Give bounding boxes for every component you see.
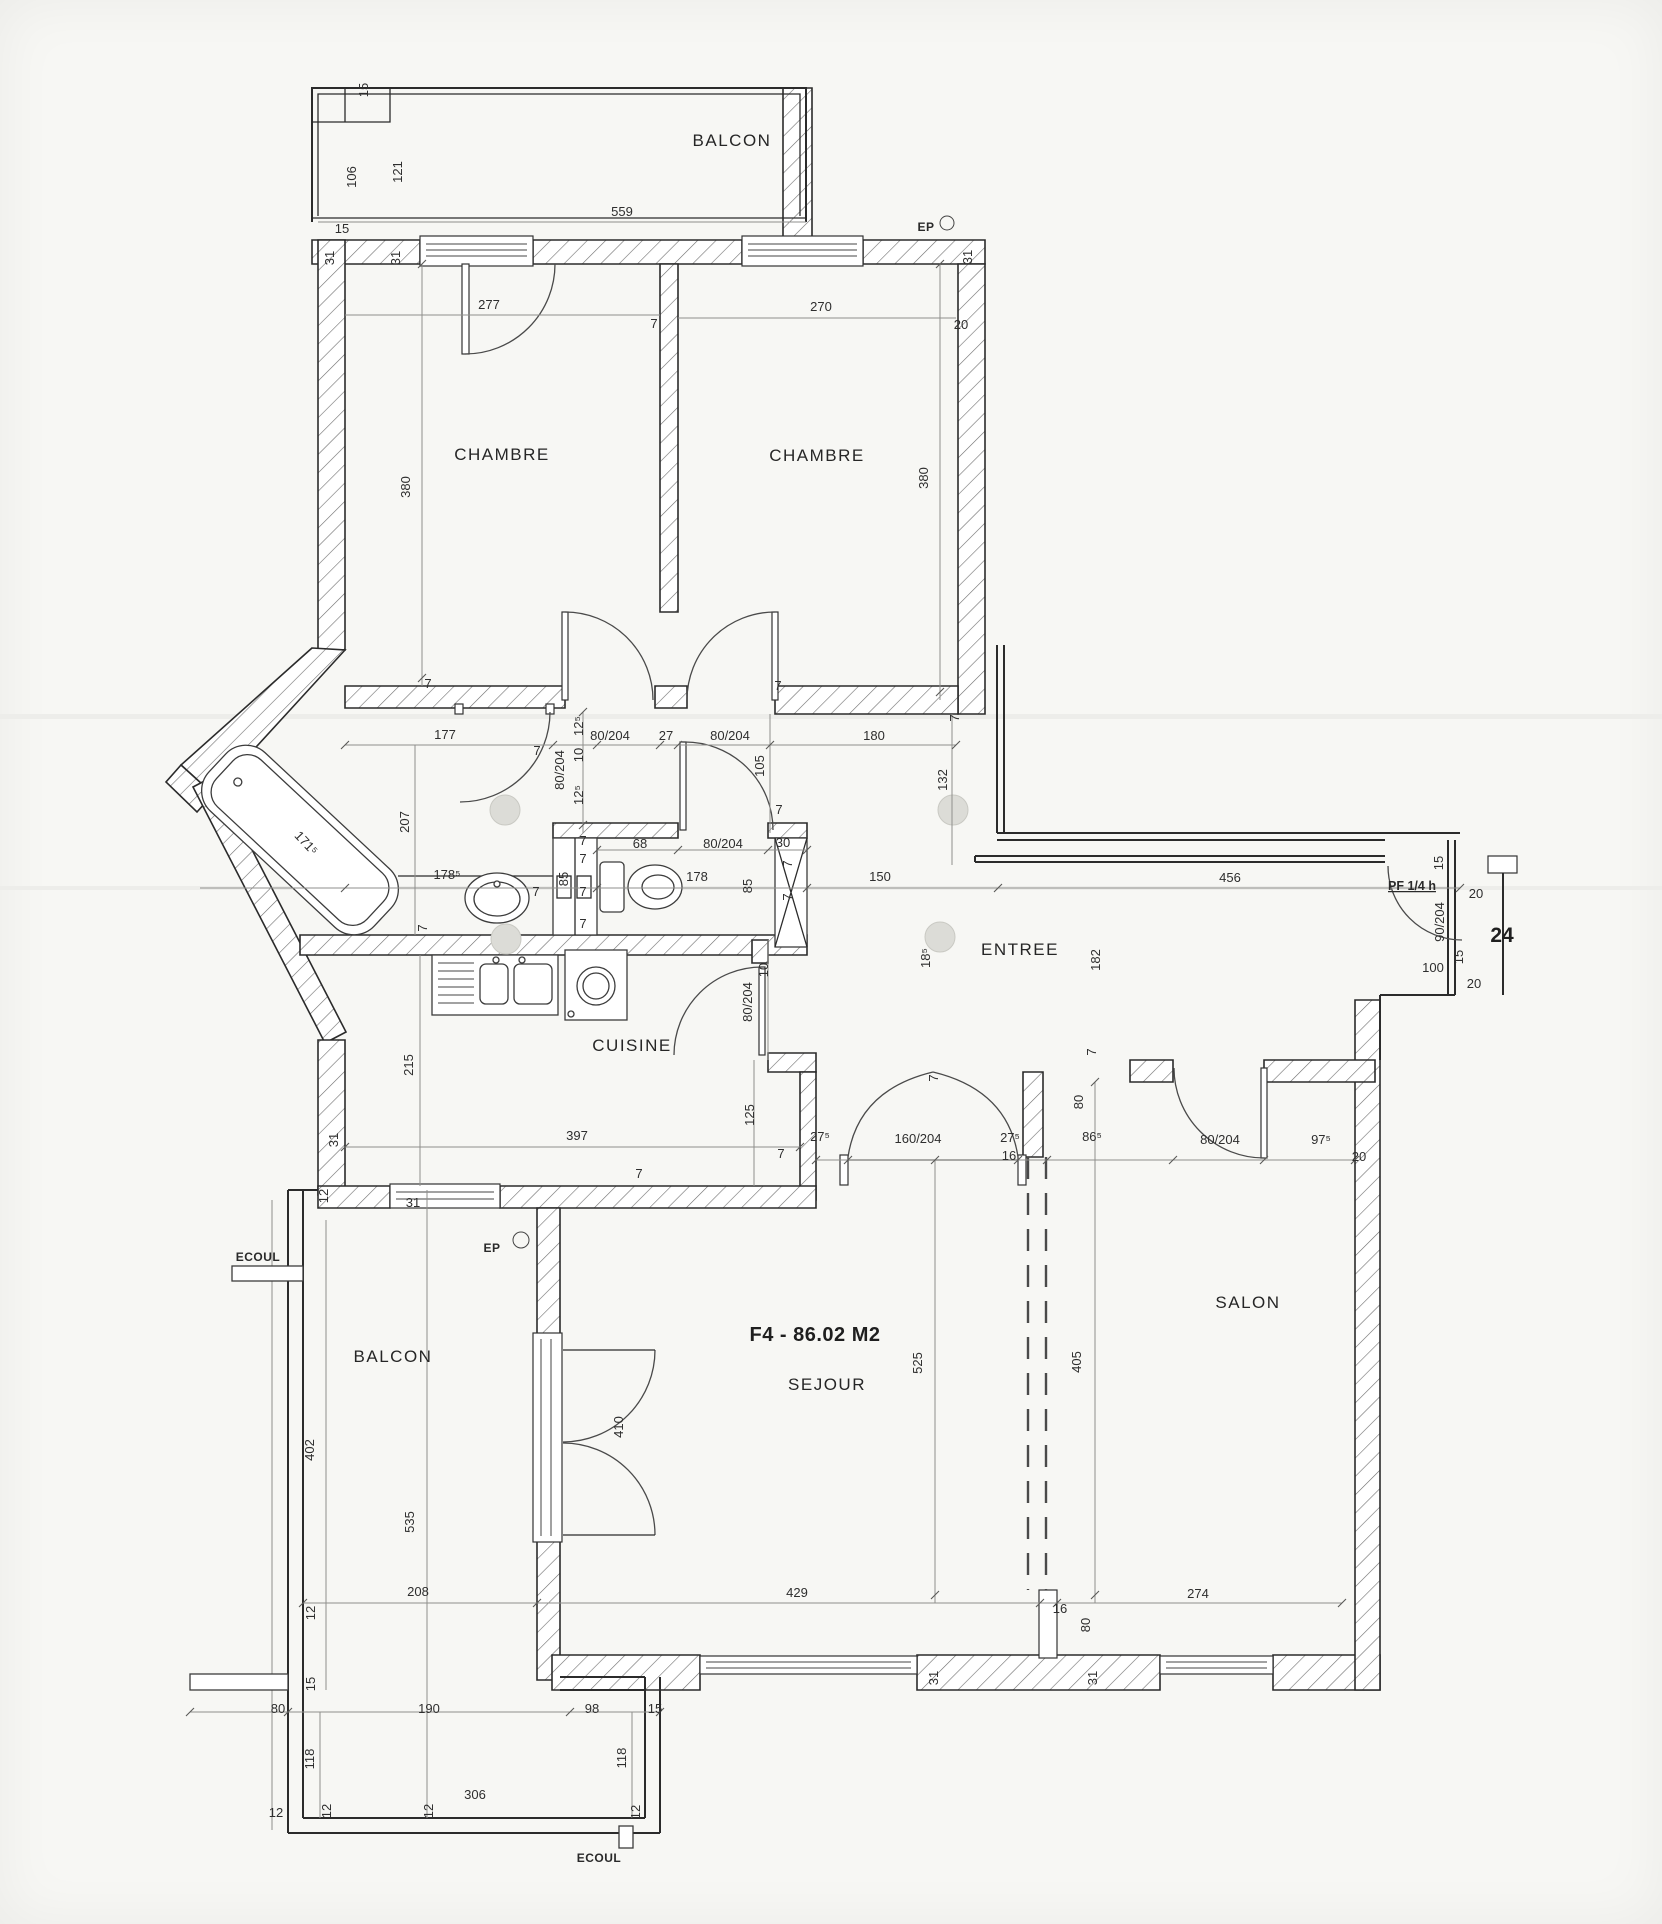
drain-pipe-left-upper [232, 1266, 303, 1281]
door-bedroom1 [562, 612, 653, 700]
dim-label: 182 [1088, 949, 1103, 971]
dim-label: 10 [756, 963, 771, 977]
window-bedroom1 [420, 236, 533, 266]
dim-label: 7 [780, 860, 795, 867]
kitchen-sink [432, 955, 558, 1015]
unit-number: 24 [1490, 924, 1514, 947]
dim-label: 27 [659, 728, 673, 743]
dim-label: 178⁵ [433, 867, 460, 882]
dim-label: 90/204 [1432, 902, 1447, 942]
dim-label: 31 [388, 251, 403, 265]
floor-plan-page: BALCONCHAMBRECHAMBRECUISINEENTREESALONSE… [0, 0, 1662, 1924]
dim-label: 380 [916, 467, 931, 489]
dim-label: 207 [397, 811, 412, 833]
dim-label: 125 [742, 1104, 757, 1126]
dim-label: 208 [407, 1584, 429, 1599]
dim-label: 97⁵ [1311, 1132, 1331, 1147]
dim-label: 405 [1069, 1351, 1084, 1373]
room-label-cuisine: CUISINE [592, 1036, 671, 1055]
ep-marker-top [940, 216, 954, 230]
room-label-chambre: CHAMBRE [454, 445, 550, 464]
dim-label: 118 [614, 1748, 629, 1769]
dim-label: 80/204 [552, 750, 567, 790]
dim-label: 7 [1084, 1048, 1099, 1055]
vent-duct [775, 838, 807, 947]
dim-label: 86⁵ [1082, 1129, 1102, 1144]
dim-label: 535 [402, 1511, 417, 1533]
dim-label: 27⁵ [810, 1129, 830, 1144]
dim-label: 7 [635, 1166, 642, 1181]
dim-label: 559 [611, 204, 633, 219]
dim-label: 105 [752, 755, 767, 777]
toilet [600, 862, 682, 912]
dim-label: 31 [960, 250, 975, 264]
window-sejour-balcony [533, 1333, 562, 1542]
dim-label: 177 [434, 727, 456, 742]
dim-label: 7 [579, 833, 586, 848]
door-sejour-double [840, 1072, 1026, 1185]
dim-label: 80 [1071, 1095, 1086, 1109]
dim-label: 410 [611, 1416, 626, 1438]
dim-label: 397 [566, 1128, 588, 1143]
dim-label: 7 [926, 1074, 941, 1081]
dim-label: 85 [556, 872, 571, 886]
dim-label: 118 [302, 1749, 317, 1770]
dim-label: 31 [1085, 1671, 1100, 1685]
room-label-salon: SALON [1215, 1293, 1280, 1312]
dim-label: 16 [1053, 1601, 1067, 1616]
cooktop [565, 950, 627, 1020]
dim-label: 7 [415, 924, 430, 931]
annotation-ecoul: ECOUL [577, 1851, 622, 1865]
dim-label: 7 [947, 714, 962, 721]
dim-label: 7 [579, 884, 586, 899]
dim-label: 20 [954, 317, 968, 332]
dim-label: 80/204 [703, 836, 743, 851]
dim-label: 100 [1422, 960, 1444, 975]
dim-label: 31 [926, 1671, 941, 1685]
dim-label: 80 [271, 1701, 285, 1716]
dim-label: 20 [1469, 886, 1483, 901]
dim-label: 12 [421, 1804, 436, 1818]
dim-label: 98 [585, 1701, 599, 1716]
dim-label: 15 [303, 1677, 318, 1691]
dim-label: 12 [269, 1805, 283, 1820]
dim-label: 380 [398, 476, 413, 498]
dim-label: 31 [406, 1195, 420, 1210]
dim-label: 132 [935, 769, 950, 791]
room-label-balcon: BALCON [354, 1347, 433, 1366]
dim-label: 180 [863, 728, 885, 743]
dim-label: 150 [869, 869, 891, 884]
dim-label: 80/204 [710, 728, 750, 743]
dim-label: 456 [1219, 870, 1241, 885]
dim-label: 15 [335, 221, 349, 236]
dim-label: 80/204 [740, 982, 755, 1022]
dim-label: 15 [648, 1701, 662, 1716]
dim-label: 7 [424, 676, 431, 691]
dim-label: 80/204 [1200, 1132, 1240, 1147]
dim-label: 68 [633, 836, 647, 851]
dim-label: 12 [303, 1606, 318, 1620]
dim-label: 7 [650, 316, 657, 331]
dim-label: 7 [774, 678, 781, 693]
dim-label: 15 [1431, 856, 1446, 870]
dim-label: 12 [628, 1805, 643, 1819]
dim-label: 16 [1002, 1148, 1016, 1163]
dim-label: 178 [686, 869, 708, 884]
ep-marker-bottom [513, 1232, 529, 1248]
window-bedroom2 [742, 236, 863, 266]
dim-label: 429 [786, 1585, 808, 1600]
drain-pipe-left-lower [190, 1674, 288, 1690]
drain-pipe-bottom [619, 1826, 633, 1848]
dim-label: 12⁵ [571, 716, 586, 736]
entrance-door-tag: PF 1/4 h [1388, 879, 1436, 893]
dim-label: 31 [326, 1133, 341, 1147]
dim-label: 7 [532, 884, 539, 899]
labels: BALCONCHAMBRECHAMBRECUISINEENTREESALONSE… [236, 83, 1514, 1865]
window-salon-south [1160, 1656, 1273, 1674]
dim-label: 402 [302, 1439, 317, 1461]
open-plan-divider [1028, 1157, 1046, 1590]
dim-label: 306 [464, 1787, 486, 1802]
dim-label: 10 [571, 748, 586, 762]
dim-label: 7 [780, 893, 795, 900]
door-sejour-french [563, 1350, 655, 1535]
room-label-entree: ENTREE [981, 940, 1059, 959]
dim-label: 80 [1078, 1618, 1093, 1632]
dim-label: 12⁵ [571, 785, 586, 805]
floor-plan-drawing: BALCONCHAMBRECHAMBRECUISINEENTREESALONSE… [0, 0, 1662, 1924]
annotation-ecoul: ECOUL [236, 1250, 281, 1264]
dim-label: 20 [1352, 1149, 1366, 1164]
dim-label: 15 [1451, 950, 1466, 964]
dim-label: 274 [1187, 1586, 1209, 1601]
dim-label: 7 [533, 743, 540, 758]
annotation-ep: EP [483, 1241, 500, 1255]
dim-label: 190 [418, 1701, 440, 1716]
dim-label: 160/204 [895, 1131, 942, 1146]
door-bedroom2 [687, 612, 778, 700]
dim-label: 270 [810, 299, 832, 314]
window-sejour-south [700, 1656, 917, 1674]
room-label-balcon: BALCON [693, 131, 772, 150]
dim-label: 7 [775, 802, 782, 817]
annotation-ep: EP [917, 220, 934, 234]
dim-label: 7 [777, 1146, 784, 1161]
dim-label: 20 [1467, 976, 1481, 991]
area-label: F4 - 86.02 M2 [749, 1324, 880, 1346]
door-bedroom1-balcony [462, 264, 555, 354]
dim-label: 27⁵ [1000, 1130, 1020, 1145]
dim-label: 18⁵ [918, 948, 933, 968]
dim-label: 215 [401, 1054, 416, 1076]
room-label-chambre: CHAMBRE [769, 446, 865, 465]
dim-label: 15 [356, 83, 371, 97]
dim-label: 31 [322, 251, 337, 265]
dim-label: 80/204 [590, 728, 630, 743]
door-entrance [1388, 866, 1462, 940]
dim-label: 7 [579, 916, 586, 931]
dim-label: 106 [344, 166, 359, 188]
dim-label: 85 [740, 879, 755, 893]
dim-label: 30 [776, 835, 790, 850]
dim-label: 7 [579, 851, 586, 866]
dim-label: 121 [390, 161, 405, 183]
dim-label: 277 [478, 297, 500, 312]
dim-label: 12 [316, 1189, 331, 1203]
room-label-sejour: SEJOUR [788, 1375, 866, 1394]
dim-label: 525 [910, 1352, 925, 1374]
dim-label: 12 [319, 1804, 334, 1818]
